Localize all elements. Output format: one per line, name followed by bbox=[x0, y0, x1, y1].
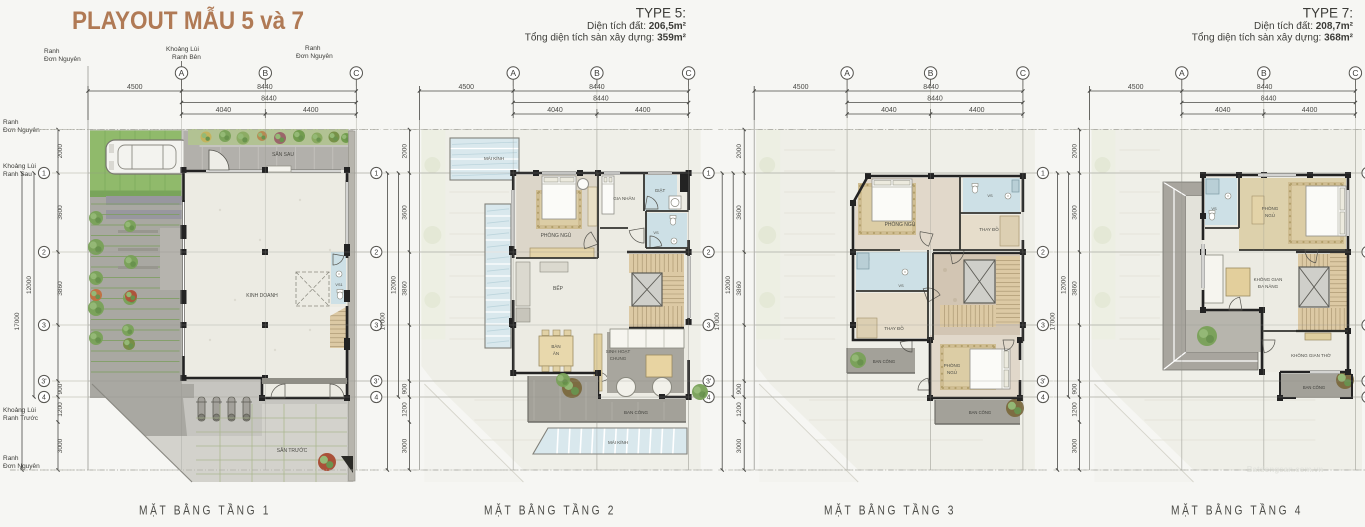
svg-text:Đơn Nguyên: Đơn Nguyên bbox=[44, 56, 81, 63]
svg-text:4400: 4400 bbox=[1302, 107, 1318, 114]
svg-text:B: B bbox=[928, 68, 934, 78]
svg-text:4400: 4400 bbox=[969, 107, 985, 114]
svg-text:VS: VS bbox=[1211, 206, 1217, 211]
svg-text:1: 1 bbox=[707, 171, 711, 178]
svg-text:C: C bbox=[1352, 68, 1358, 78]
svg-text:Tổng diện tích sàn xây dựng: 3: Tổng diện tích sàn xây dựng: 359m² bbox=[525, 32, 687, 44]
svg-text:B: B bbox=[1261, 68, 1267, 78]
svg-text:2000: 2000 bbox=[736, 144, 743, 159]
svg-text:MẶT BẰNG TẦNG 4: MẶT BẰNG TẦNG 4 bbox=[1171, 503, 1303, 518]
svg-text:4040: 4040 bbox=[547, 107, 563, 114]
svg-text:3': 3' bbox=[374, 379, 379, 386]
svg-text:3': 3' bbox=[41, 379, 46, 386]
svg-text:1200: 1200 bbox=[1072, 402, 1079, 417]
svg-text:CHUNG: CHUNG bbox=[610, 356, 627, 361]
svg-text:BAN CÔNG: BAN CÔNG bbox=[969, 410, 991, 415]
svg-text:12000: 12000 bbox=[1061, 276, 1068, 294]
svg-text:900: 900 bbox=[57, 383, 64, 394]
svg-text:4400: 4400 bbox=[303, 107, 319, 114]
svg-text:Đơn Nguyên: Đơn Nguyên bbox=[3, 127, 40, 134]
svg-text:3600: 3600 bbox=[57, 205, 64, 220]
svg-text:3: 3 bbox=[1041, 323, 1045, 330]
svg-text:MẶT BẰNG TẦNG 2: MẶT BẰNG TẦNG 2 bbox=[484, 503, 616, 518]
svg-text:4: 4 bbox=[1041, 395, 1045, 402]
svg-text:17000: 17000 bbox=[714, 312, 721, 330]
svg-text:1200: 1200 bbox=[401, 402, 408, 417]
svg-text:A: A bbox=[1179, 68, 1185, 78]
svg-text:THAY ĐỒ: THAY ĐỒ bbox=[979, 226, 999, 232]
svg-text:4500: 4500 bbox=[793, 84, 809, 91]
svg-text:2000: 2000 bbox=[57, 144, 64, 159]
svg-text:8440: 8440 bbox=[923, 84, 939, 91]
svg-text:8440: 8440 bbox=[589, 84, 605, 91]
svg-text:1: 1 bbox=[1041, 171, 1045, 178]
svg-text:3600: 3600 bbox=[401, 205, 408, 220]
svg-text:3000: 3000 bbox=[57, 438, 64, 453]
svg-text:17000: 17000 bbox=[379, 312, 386, 330]
svg-text:NGỦ: NGỦ bbox=[1265, 212, 1275, 218]
svg-text:BAN CÔNG: BAN CÔNG bbox=[1303, 385, 1325, 390]
svg-text:SÂN TRƯỚC: SÂN TRƯỚC bbox=[277, 447, 308, 454]
svg-text:4: 4 bbox=[707, 395, 711, 402]
svg-text:3000: 3000 bbox=[736, 438, 743, 453]
svg-text:MÁI KÍNH: MÁI KÍNH bbox=[608, 439, 628, 445]
svg-text:BẾP: BẾP bbox=[553, 285, 564, 292]
svg-text:C: C bbox=[1020, 68, 1026, 78]
svg-text:4040: 4040 bbox=[216, 107, 232, 114]
svg-text:Khoảng Lùi: Khoảng Lùi bbox=[3, 407, 36, 414]
svg-text:A: A bbox=[844, 68, 850, 78]
svg-text:PHÒNG NGỦ: PHÒNG NGỦ bbox=[541, 232, 572, 239]
svg-text:8440: 8440 bbox=[1261, 96, 1277, 103]
svg-text:3': 3' bbox=[706, 379, 711, 386]
svg-text:Batdongsan.com.vn: Batdongsan.com.vn bbox=[1247, 465, 1324, 474]
svg-text:4400: 4400 bbox=[635, 107, 651, 114]
svg-text:4500: 4500 bbox=[127, 84, 143, 91]
svg-text:A: A bbox=[179, 68, 185, 78]
svg-text:2: 2 bbox=[707, 250, 711, 257]
svg-text:1200: 1200 bbox=[57, 402, 64, 417]
svg-text:PLAYOUT MẪU 5 và 7: PLAYOUT MẪU 5 và 7 bbox=[72, 5, 304, 35]
svg-text:ĂN: ĂN bbox=[553, 350, 559, 356]
svg-text:900: 900 bbox=[1072, 383, 1079, 394]
svg-text:8440: 8440 bbox=[927, 96, 943, 103]
svg-text:4040: 4040 bbox=[1215, 107, 1231, 114]
svg-text:VS: VS bbox=[987, 193, 993, 198]
svg-text:BAN CÔNG: BAN CÔNG bbox=[873, 359, 895, 364]
svg-text:TYPE 5:: TYPE 5: bbox=[636, 6, 686, 21]
svg-text:3: 3 bbox=[707, 323, 711, 330]
svg-text:900: 900 bbox=[736, 383, 743, 394]
svg-text:Khoảng Lùi: Khoảng Lùi bbox=[3, 163, 36, 170]
svg-text:PHÒNG: PHÒNG bbox=[944, 362, 961, 368]
svg-text:THAY ĐỒ: THAY ĐỒ bbox=[884, 325, 904, 331]
svg-text:MẶT BẰNG TẦNG 1: MẶT BẰNG TẦNG 1 bbox=[139, 503, 271, 518]
svg-text:BAN CÔNG: BAN CÔNG bbox=[624, 409, 649, 415]
svg-text:1: 1 bbox=[374, 171, 378, 178]
svg-text:TYPE 7:: TYPE 7: bbox=[1303, 6, 1353, 21]
svg-text:4: 4 bbox=[42, 395, 46, 402]
svg-text:2000: 2000 bbox=[1072, 144, 1079, 159]
svg-text:8440: 8440 bbox=[257, 84, 273, 91]
svg-text:3860: 3860 bbox=[1072, 281, 1079, 296]
svg-text:VS: VS bbox=[898, 283, 904, 288]
svg-text:Tổng diện tích sàn xây dựng: 3: Tổng diện tích sàn xây dựng: 368m² bbox=[1192, 32, 1354, 44]
svg-text:KHÔNG GIAN THỜ: KHÔNG GIAN THỜ bbox=[1291, 352, 1331, 358]
svg-text:2: 2 bbox=[42, 250, 46, 257]
svg-text:3': 3' bbox=[1040, 379, 1045, 386]
svg-text:4040: 4040 bbox=[881, 107, 897, 114]
svg-text:C: C bbox=[686, 68, 692, 78]
svg-text:A: A bbox=[510, 68, 516, 78]
svg-text:4500: 4500 bbox=[1128, 84, 1144, 91]
svg-text:17000: 17000 bbox=[14, 312, 21, 330]
svg-text:4500: 4500 bbox=[459, 84, 475, 91]
svg-text:Ranh Trước: Ranh Trước bbox=[3, 415, 39, 422]
svg-text:SÂN SAU: SÂN SAU bbox=[272, 151, 294, 158]
svg-text:3: 3 bbox=[42, 323, 46, 330]
svg-text:MÁI KÍNH: MÁI KÍNH bbox=[484, 155, 504, 161]
svg-text:3860: 3860 bbox=[57, 281, 64, 296]
svg-text:B: B bbox=[594, 68, 600, 78]
svg-text:8440: 8440 bbox=[261, 96, 277, 103]
svg-text:NGỦ: NGỦ bbox=[947, 369, 957, 375]
svg-text:C: C bbox=[353, 68, 359, 78]
svg-text:Khoảng Lùi: Khoảng Lùi bbox=[166, 46, 199, 53]
svg-text:12000: 12000 bbox=[390, 276, 397, 294]
svg-text:Ranh: Ranh bbox=[44, 48, 60, 55]
svg-text:KHÔNG GIAN: KHÔNG GIAN bbox=[1254, 276, 1283, 282]
svg-text:Ranh: Ranh bbox=[3, 455, 19, 462]
svg-text:2000: 2000 bbox=[401, 144, 408, 159]
svg-text:3860: 3860 bbox=[736, 281, 743, 296]
svg-text:2: 2 bbox=[374, 250, 378, 257]
svg-text:ĐA NĂNG: ĐA NĂNG bbox=[1258, 283, 1279, 289]
svg-text:VS: VS bbox=[653, 230, 659, 235]
svg-text:3000: 3000 bbox=[401, 438, 408, 453]
svg-text:GIA NHÂN: GIA NHÂN bbox=[613, 195, 635, 201]
svg-text:1: 1 bbox=[42, 171, 46, 178]
svg-text:8440: 8440 bbox=[593, 96, 609, 103]
svg-text:KINH DOANH: KINH DOANH bbox=[246, 293, 278, 299]
svg-text:12000: 12000 bbox=[26, 276, 33, 294]
svg-text:PHÒNG: PHÒNG bbox=[1262, 205, 1279, 211]
svg-text:900: 900 bbox=[401, 383, 408, 394]
svg-text:3600: 3600 bbox=[736, 205, 743, 220]
svg-text:Ranh Sau: Ranh Sau bbox=[3, 171, 32, 178]
svg-text:B: B bbox=[262, 68, 268, 78]
svg-text:8440: 8440 bbox=[1257, 84, 1273, 91]
svg-text:Ranh: Ranh bbox=[3, 119, 19, 126]
svg-text:3860: 3860 bbox=[401, 281, 408, 296]
svg-text:VS1: VS1 bbox=[335, 283, 342, 287]
svg-text:3600: 3600 bbox=[1072, 205, 1079, 220]
svg-text:4: 4 bbox=[374, 395, 378, 402]
svg-text:3: 3 bbox=[374, 323, 378, 330]
svg-text:Diện tích đất: 206,5m²: Diện tích đất: 206,5m² bbox=[587, 20, 687, 32]
svg-text:3000: 3000 bbox=[1072, 438, 1079, 453]
svg-text:1200: 1200 bbox=[736, 402, 743, 417]
svg-text:Ranh Bên: Ranh Bên bbox=[172, 54, 201, 61]
svg-text:Diện tích đất: 208,7m²: Diện tích đất: 208,7m² bbox=[1254, 20, 1354, 32]
svg-text:GIẶT: GIẶT bbox=[655, 187, 666, 193]
svg-text:SINH HOẠT: SINH HOẠT bbox=[606, 349, 631, 354]
svg-text:Đơn Nguyên: Đơn Nguyên bbox=[296, 53, 333, 60]
svg-text:MẶT BẰNG TẦNG 3: MẶT BẰNG TẦNG 3 bbox=[824, 503, 956, 518]
svg-text:12000: 12000 bbox=[725, 276, 732, 294]
svg-text:2: 2 bbox=[1041, 250, 1045, 257]
svg-text:PHÒNG NGỦ: PHÒNG NGỦ bbox=[885, 221, 916, 228]
svg-text:17000: 17000 bbox=[1050, 312, 1057, 330]
svg-text:BÀN: BÀN bbox=[551, 343, 560, 349]
svg-text:Ranh: Ranh bbox=[305, 45, 321, 52]
